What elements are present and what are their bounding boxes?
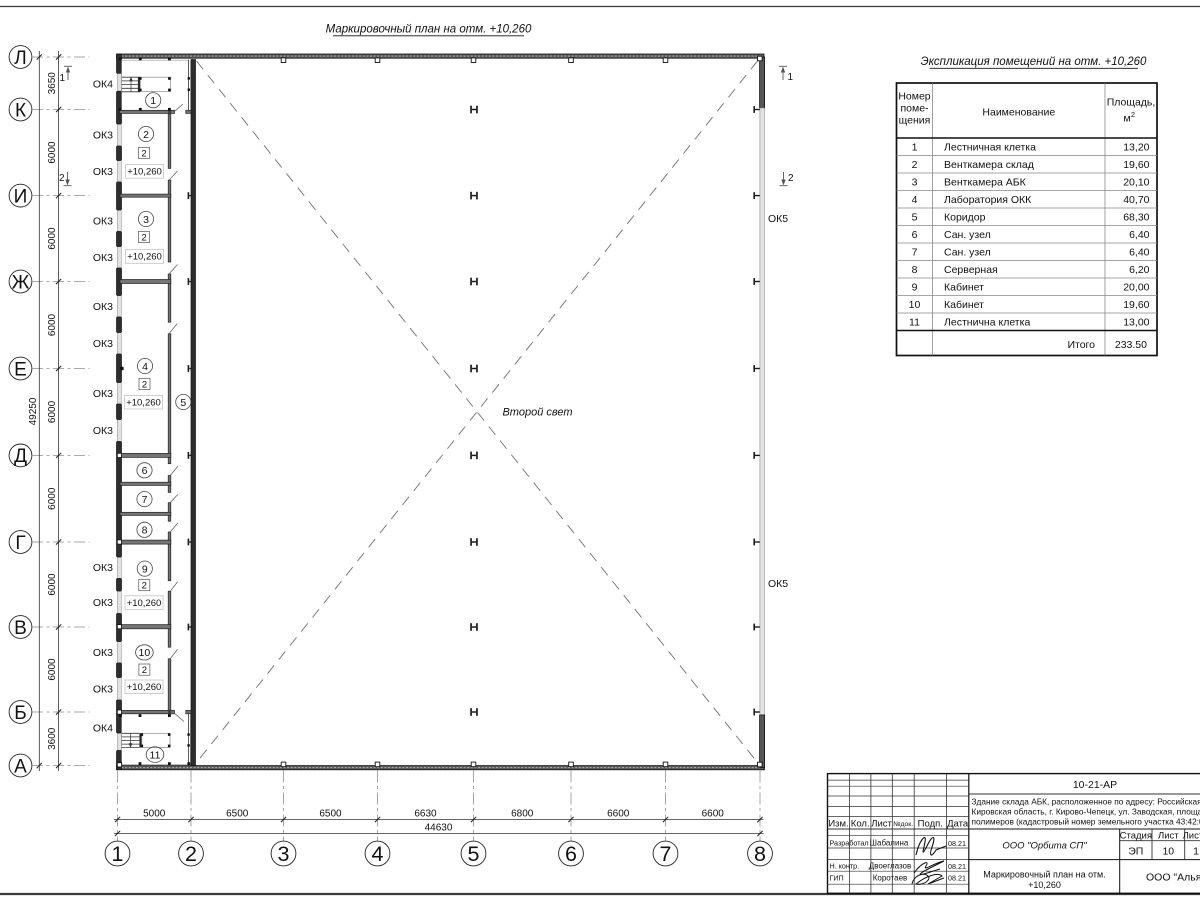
svg-text:Венткамера склад: Венткамера склад [944, 159, 1034, 171]
svg-text:+10,260: +10,260 [127, 252, 162, 263]
svg-text:ОК3: ОК3 [93, 388, 113, 400]
svg-text:7: 7 [660, 842, 672, 866]
svg-text:20,00: 20,00 [1123, 282, 1149, 294]
svg-text:6600: 6600 [702, 809, 725, 820]
svg-text:Номер: Номер [898, 91, 930, 103]
svg-text:Лист: Лист [1158, 830, 1179, 841]
svg-text:Ж: Ж [12, 272, 30, 293]
svg-text:Кабинет: Кабинет [944, 299, 984, 311]
svg-text:ООО "Альянс: ООО "Альянс [1146, 872, 1200, 884]
svg-text:+10,260: +10,260 [1028, 880, 1061, 890]
svg-text:49250: 49250 [28, 397, 39, 425]
svg-text:11: 11 [909, 317, 920, 329]
svg-text:1: 1 [788, 72, 794, 83]
svg-text:Венткамера АБК: Венткамера АБК [944, 177, 1027, 189]
svg-text:5: 5 [180, 397, 186, 409]
svg-text:щения: щения [899, 115, 931, 127]
svg-text:6630: 6630 [414, 809, 437, 820]
svg-text:6500: 6500 [226, 809, 249, 820]
svg-text:Д: Д [14, 446, 27, 467]
svg-text:ОК3: ОК3 [93, 683, 113, 695]
svg-text:Н. контр.: Н. контр. [830, 862, 860, 871]
svg-text:полимеров (кадастровый номер з: полимеров (кадастровый номер земельного … [972, 817, 1200, 827]
svg-text:Коридор: Коридор [944, 212, 986, 224]
svg-text:Второй свет: Второй свет [502, 407, 572, 419]
svg-text:11: 11 [150, 749, 161, 761]
svg-text:9: 9 [142, 563, 148, 575]
svg-text:Б: Б [14, 703, 26, 724]
svg-text:Двоеглазов: Двоеглазов [869, 862, 912, 871]
svg-text:2: 2 [142, 665, 147, 676]
svg-text:4: 4 [912, 194, 918, 206]
svg-text:ООО "Орбита СП": ООО "Орбита СП" [1002, 840, 1087, 851]
svg-text:Итого: Итого [1067, 339, 1095, 351]
svg-text:7: 7 [142, 494, 148, 506]
svg-text:3: 3 [143, 214, 149, 226]
svg-text:Шабалина: Шабалина [870, 839, 909, 848]
svg-text:2: 2 [788, 173, 794, 184]
svg-text:ОК3: ОК3 [93, 597, 113, 609]
svg-text:1: 1 [59, 73, 65, 84]
svg-text:ОК3: ОК3 [93, 130, 113, 142]
svg-text:ОК4: ОК4 [93, 723, 113, 735]
svg-text:2: 2 [185, 842, 197, 866]
svg-text:+10,260: +10,260 [127, 167, 162, 178]
svg-text:19,60: 19,60 [1123, 299, 1149, 311]
svg-text:ГИП: ГИП [830, 873, 844, 882]
svg-text:1: 1 [150, 95, 156, 107]
svg-text:68,30: 68,30 [1123, 212, 1149, 224]
svg-text:Е: Е [14, 359, 27, 380]
svg-text:6000: 6000 [47, 658, 58, 681]
svg-text:10: 10 [909, 299, 921, 311]
svg-text:м: м [1123, 113, 1130, 125]
svg-text:5000: 5000 [143, 809, 166, 820]
svg-text:ОК5: ОК5 [768, 578, 788, 590]
svg-text:3650: 3650 [47, 72, 58, 95]
svg-text:Кабинет: Кабинет [944, 282, 984, 294]
svg-text:3: 3 [912, 177, 918, 189]
svg-text:2: 2 [912, 159, 918, 171]
svg-text:ЭП: ЭП [1128, 845, 1143, 857]
svg-text:13,00: 13,00 [1123, 317, 1149, 329]
svg-text:6,20: 6,20 [1129, 264, 1150, 276]
svg-text:ОК5: ОК5 [768, 213, 788, 225]
svg-text:В: В [14, 618, 27, 639]
svg-text:ОК3: ОК3 [93, 166, 113, 178]
svg-text:2: 2 [141, 233, 146, 244]
svg-text:10-21-АР: 10-21-АР [1073, 779, 1117, 791]
svg-text:Наименование: Наименование [982, 107, 1055, 119]
svg-text:10: 10 [1162, 845, 1174, 857]
svg-text:К: К [15, 100, 26, 121]
svg-text:1: 1 [1193, 845, 1199, 857]
svg-text:+10,260: +10,260 [127, 682, 162, 693]
svg-text:Лаборатория ОКК: Лаборатория ОКК [944, 194, 1032, 206]
svg-text:Сан. узел: Сан. узел [944, 247, 991, 259]
svg-text:Кол.: Кол. [851, 818, 870, 829]
svg-text:ОК3: ОК3 [93, 562, 113, 574]
svg-text:08.21: 08.21 [948, 874, 966, 883]
svg-text:Маркировочный план на отм. +10: Маркировочный план на отм. +10,260 [326, 24, 532, 36]
svg-text:233.50: 233.50 [1115, 339, 1147, 351]
svg-text:6800: 6800 [511, 809, 534, 820]
svg-text:3600: 3600 [47, 727, 58, 750]
svg-text:ОК3: ОК3 [93, 301, 113, 313]
svg-text:6: 6 [142, 465, 148, 477]
svg-text:+10,260: +10,260 [127, 598, 162, 609]
svg-text:6,40: 6,40 [1129, 247, 1150, 259]
svg-text:+10,260: +10,260 [126, 397, 161, 408]
svg-text:20,10: 20,10 [1123, 177, 1149, 189]
svg-text:ОК3: ОК3 [93, 425, 113, 437]
svg-text:6500: 6500 [319, 809, 342, 820]
svg-text:Сан. узел: Сан. узел [944, 229, 991, 241]
svg-text:8: 8 [754, 842, 766, 866]
svg-text:Коротаев: Коротаев [873, 873, 908, 882]
svg-text:1: 1 [112, 842, 124, 866]
svg-text:2: 2 [143, 129, 149, 141]
svg-text:6: 6 [565, 842, 577, 866]
svg-text:6,40: 6,40 [1129, 229, 1150, 241]
svg-text:Серверная: Серверная [944, 264, 998, 276]
svg-text:13,20: 13,20 [1123, 142, 1149, 154]
svg-text:2: 2 [142, 581, 147, 592]
svg-text:ОК4: ОК4 [93, 79, 113, 91]
svg-text:8: 8 [142, 525, 148, 537]
svg-text:ОК3: ОК3 [93, 215, 113, 227]
svg-text:8: 8 [912, 264, 918, 276]
svg-text:2: 2 [59, 173, 65, 184]
svg-text:5: 5 [468, 842, 480, 866]
svg-text:19,60: 19,60 [1123, 159, 1149, 171]
svg-text:Г: Г [15, 533, 25, 554]
svg-text:Л: Л [14, 48, 26, 69]
svg-text:4: 4 [372, 842, 384, 866]
svg-text:ОК3: ОК3 [93, 252, 113, 264]
svg-text:4: 4 [142, 361, 148, 373]
svg-text:поме-: поме- [900, 103, 929, 115]
svg-text:40,70: 40,70 [1123, 194, 1149, 206]
svg-text:2: 2 [141, 148, 146, 159]
svg-text:5: 5 [912, 212, 918, 224]
svg-text:Здание склада АБК, расположенн: Здание склада АБК, расположенное по адре… [972, 797, 1200, 807]
svg-text:№док.: №док. [893, 821, 913, 828]
svg-text:Дата: Дата [947, 818, 969, 829]
svg-text:Лестнична клетка: Лестнична клетка [944, 317, 1030, 329]
svg-text:Экспликация помещений на отм.: Экспликация помещений на отм. +10,260 [921, 56, 1147, 68]
svg-text:44630: 44630 [425, 823, 453, 834]
svg-text:6000: 6000 [47, 400, 58, 423]
svg-text:Лист: Лист [871, 818, 892, 829]
svg-text:2: 2 [142, 379, 147, 390]
svg-text:ОК3: ОК3 [93, 647, 113, 659]
svg-text:9: 9 [912, 282, 918, 294]
svg-text:Изм.: Изм. [828, 818, 848, 829]
svg-text:ОК3: ОК3 [93, 338, 113, 350]
svg-text:Подп.: Подп. [918, 818, 943, 829]
svg-text:Маркировочный план на отм.: Маркировочный план на отм. [983, 869, 1105, 879]
svg-text:6000: 6000 [47, 313, 58, 336]
svg-text:08.21: 08.21 [948, 839, 966, 848]
svg-text:08.21: 08.21 [948, 862, 966, 871]
svg-text:6000: 6000 [47, 487, 58, 510]
svg-text:Стадия: Стадия [1120, 830, 1152, 841]
svg-text:Площадь,: Площадь, [1107, 97, 1156, 109]
svg-text:6: 6 [912, 229, 918, 241]
svg-text:Лестничная клетка: Лестничная клетка [944, 142, 1036, 154]
svg-text:Листов: Листов [1183, 830, 1200, 841]
svg-text:1: 1 [912, 142, 918, 154]
svg-text:2: 2 [1131, 110, 1135, 119]
svg-text:А: А [14, 756, 27, 777]
svg-text:7: 7 [912, 247, 918, 259]
svg-text:6000: 6000 [47, 573, 58, 596]
svg-text:6000: 6000 [47, 227, 58, 250]
svg-text:6000: 6000 [47, 141, 58, 164]
svg-text:6600: 6600 [607, 809, 630, 820]
svg-text:3: 3 [278, 842, 290, 866]
svg-text:Разработал: Разработал [830, 839, 869, 848]
svg-text:Кировская область, г. Кирово-Ч: Кировская область, г. Кирово-Чепецк, ул.… [972, 807, 1200, 817]
svg-text:10: 10 [139, 647, 151, 659]
svg-text:И: И [14, 186, 28, 207]
